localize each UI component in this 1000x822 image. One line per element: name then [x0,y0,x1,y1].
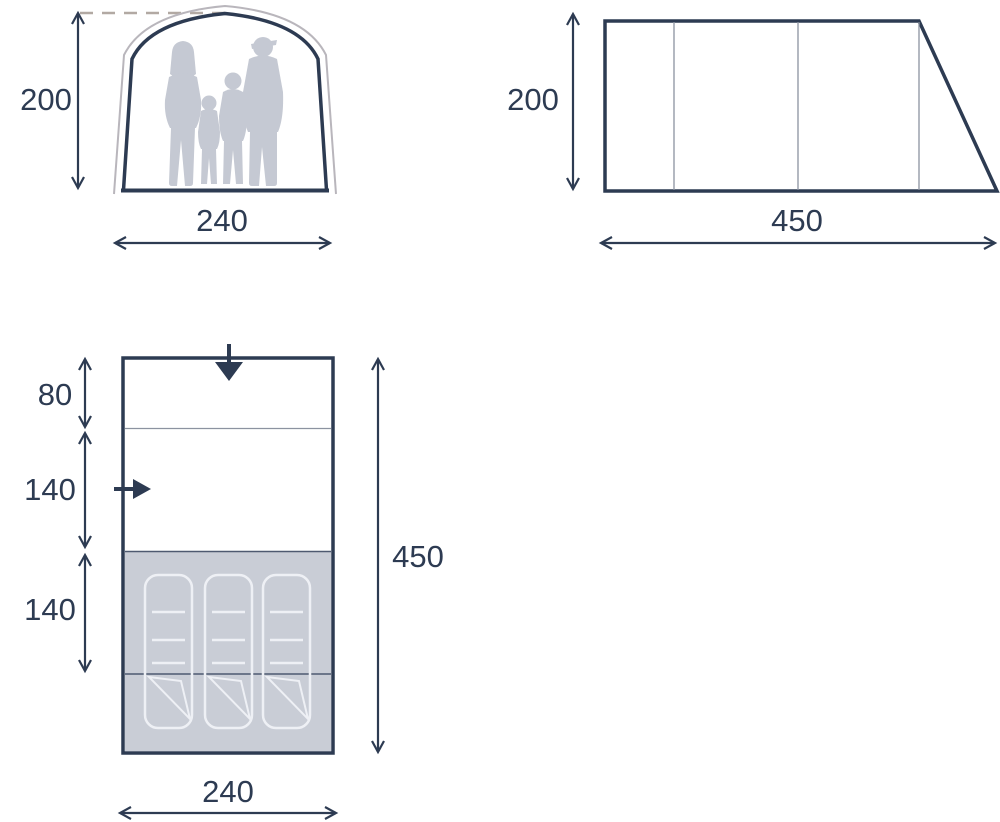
plan-length-label: 450 [392,539,444,574]
sleeping-depth-dimension: 140 [24,555,91,671]
front-height-dimension: 200 [20,13,84,188]
woman-silhouette [165,41,201,186]
side-length-dimension: 450 [601,203,995,249]
side-length-label: 450 [771,203,823,238]
plan-width-label: 240 [202,774,254,809]
family-silhouette [165,37,283,186]
living-depth-dimension: 140 [24,433,91,547]
side-profile-outline [605,21,997,191]
living-depth-label: 140 [24,472,76,507]
side-view: 200 450 [507,14,997,249]
porch-depth-dimension: 80 [38,359,91,427]
front-height-label: 200 [20,82,72,117]
tent-dimension-diagram: 200 240 200 450 [0,0,1000,822]
diagram-canvas: 200 240 200 450 [0,0,1000,822]
floor-plan: 80 140 140 450 240 [24,344,444,819]
front-view: 200 240 [20,6,336,249]
side-height-label: 200 [507,82,559,117]
groundsheet-area [125,551,331,751]
plan-length-dimension: 450 [372,359,444,752]
plan-width-dimension: 240 [120,774,336,819]
sleeping-depth-label: 140 [24,592,76,627]
man-silhouette [243,37,283,186]
small-child-silhouette [198,96,220,185]
side-height-dimension: 200 [507,14,579,189]
boy-silhouette [219,73,247,185]
front-width-dimension: 240 [115,203,330,249]
porch-depth-label: 80 [38,377,72,412]
front-width-label: 240 [196,203,248,238]
